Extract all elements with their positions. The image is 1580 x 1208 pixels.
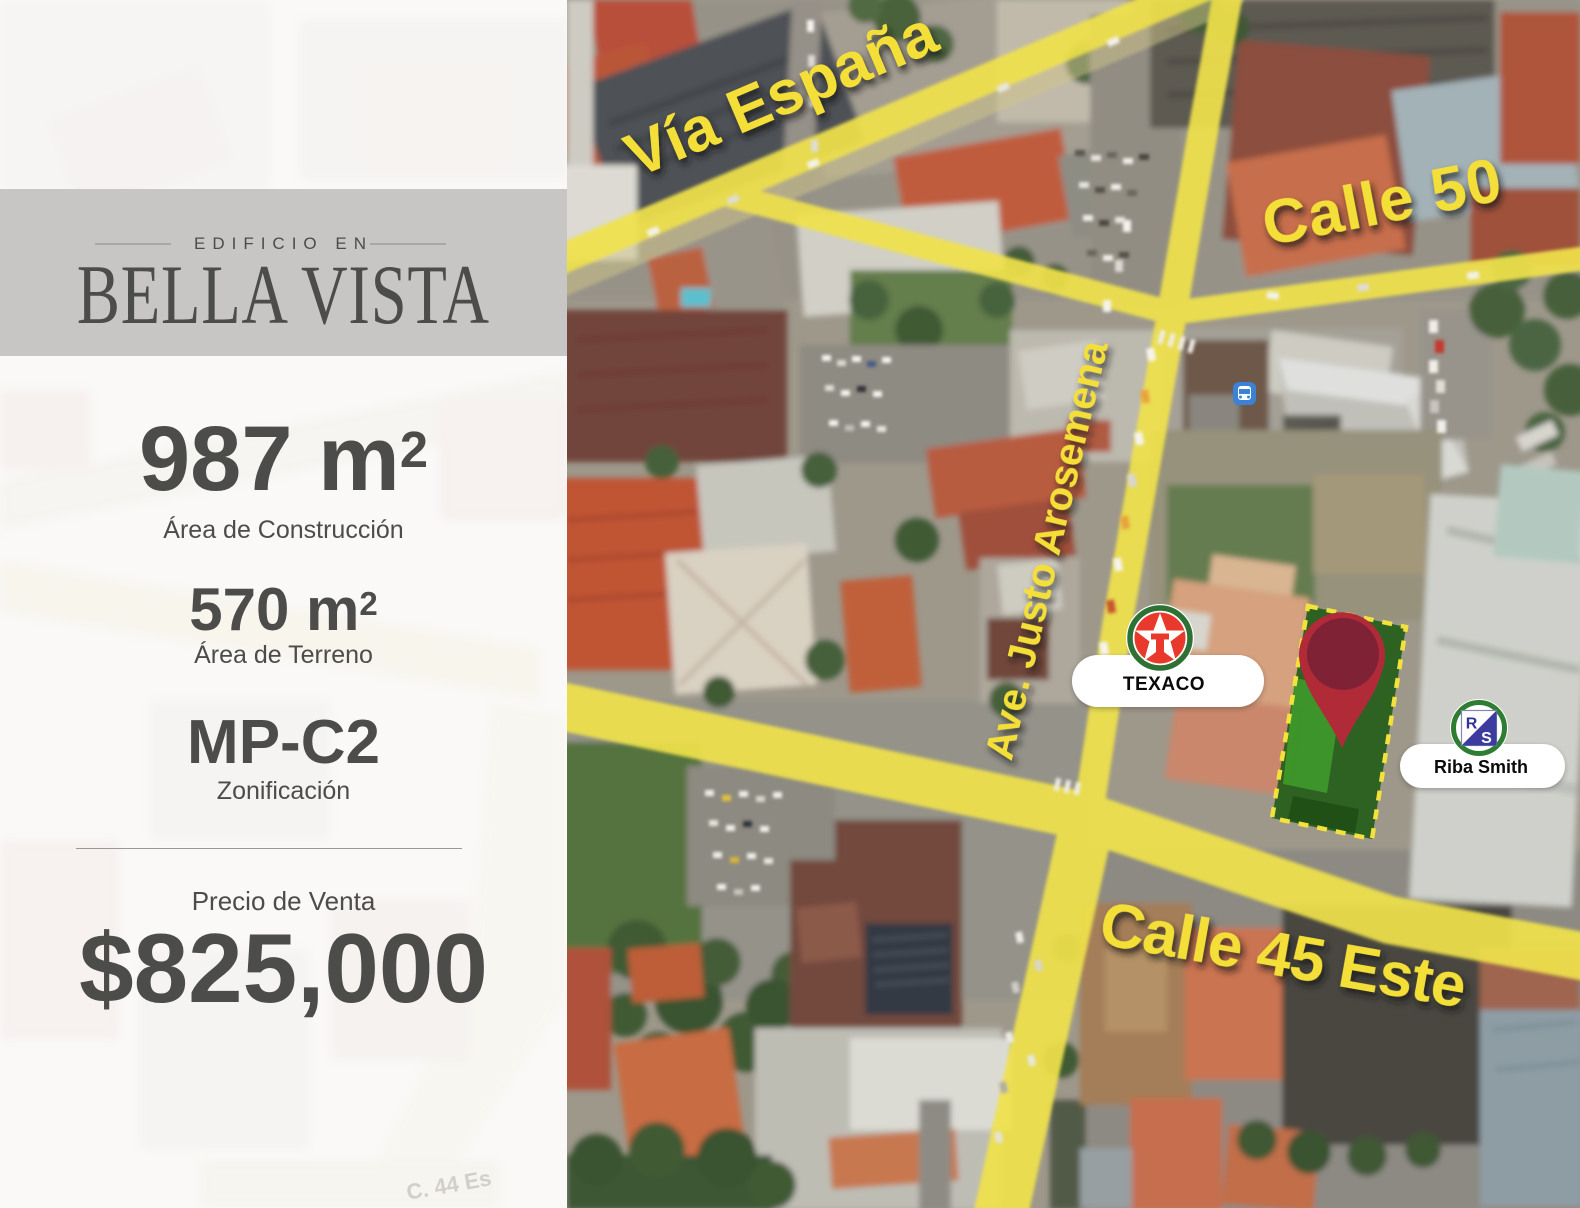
svg-text:TEXACO: TEXACO: [1123, 674, 1205, 695]
svg-text:S: S: [1481, 730, 1492, 747]
svg-text:Riba Smith: Riba Smith: [1434, 757, 1528, 777]
svg-text:R: R: [1466, 716, 1478, 733]
